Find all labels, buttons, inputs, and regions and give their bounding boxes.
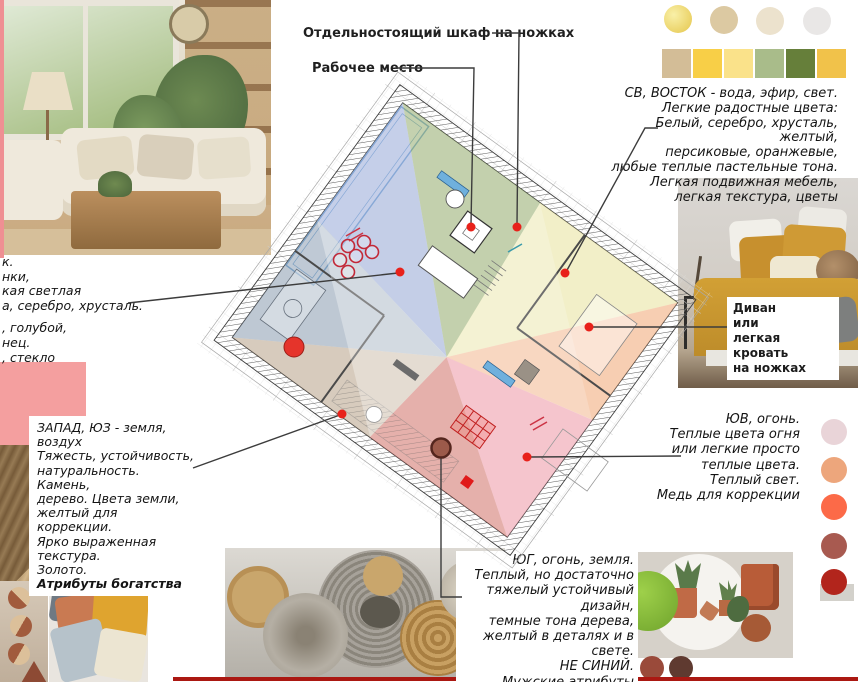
- closet-square: [514, 359, 539, 384]
- callout-dot: [513, 223, 522, 232]
- window-strip: [483, 361, 515, 387]
- text-line-bold: Атрибуты богатства: [37, 577, 195, 591]
- text-line: желтый в деталях и в свете.: [460, 629, 634, 659]
- text-line: а, серебро, хрусталь.: [2, 299, 143, 314]
- callout-dot: [523, 453, 532, 462]
- callout-dot: [585, 323, 594, 332]
- clock: [169, 4, 209, 44]
- left-room-fan: [280, 296, 305, 321]
- decor-triangle: [20, 661, 48, 682]
- text-line: или: [733, 316, 833, 331]
- bed-outline: [559, 294, 637, 375]
- swatch-circle: [821, 457, 847, 483]
- swatch-circle: [821, 533, 847, 559]
- text-line: Теплый свет.: [640, 473, 800, 488]
- text-line: Тяжесть, устойчивость,: [37, 449, 195, 463]
- left-room-fixture: [260, 269, 326, 340]
- swatch-circle: [821, 494, 847, 520]
- coffee-table: [71, 191, 221, 249]
- left-fragments-block: к. нки, кая светлая а, серебро, хрусталь…: [2, 255, 143, 365]
- pink-room-outline: [542, 429, 608, 491]
- text-line: Медь для коррекции: [640, 488, 800, 503]
- swatch-circle: [821, 419, 847, 445]
- workplace-label: Рабочее место: [312, 61, 423, 76]
- woven-disc: [363, 556, 403, 596]
- text-line: Ярко выраженная текстура.: [37, 535, 195, 563]
- decor-disc: [8, 643, 30, 665]
- chair-circles: [334, 236, 379, 279]
- stairs: [474, 261, 506, 296]
- text-line: , голубой,: [2, 321, 143, 336]
- text-line: к.: [2, 255, 143, 270]
- text-line: нец.: [2, 336, 143, 351]
- door-strip: [393, 359, 420, 381]
- leader-cabinet: [492, 33, 519, 224]
- pink-edge-strip: [0, 0, 4, 258]
- text-line: тяжелый устойчивый дизайн,: [460, 583, 634, 613]
- swatch-square: [662, 49, 691, 78]
- west-text-block: ЗАПАД, ЮЗ - земля, воздух Тяжесть, устой…: [29, 416, 203, 596]
- text-line: нки,: [2, 270, 143, 285]
- callout-dot: [561, 269, 570, 278]
- sofa-cushion: [197, 136, 252, 180]
- leader-workplace: [395, 68, 474, 224]
- plan-micro-label: [530, 417, 547, 430]
- mesh-disc-center: [360, 596, 400, 628]
- text-line: дерево. Цвета земли,: [37, 492, 195, 506]
- text-line: легкая текстура, цветы: [598, 191, 838, 206]
- leader-left-fragments: [128, 273, 398, 303]
- light-wedge: [447, 203, 592, 420]
- moodboard-canvas: Отдельностоящий шкаф на ножках Рабочее м…: [0, 0, 858, 682]
- sector-southeast-pink: [382, 329, 593, 537]
- text-line: желтый для коррекции.: [37, 506, 195, 534]
- sofa-cushion: [136, 134, 194, 181]
- red-square-marker: [460, 475, 474, 489]
- table-plant: [98, 171, 132, 197]
- sector-southwest-tan: [232, 248, 446, 446]
- text-line: на ножках: [733, 361, 833, 376]
- text-line: , стекло: [2, 351, 143, 366]
- text-line: Легкая подвижная мебель,: [598, 176, 838, 191]
- sector-northwest-blue: [297, 103, 552, 357]
- fan-disc: [263, 593, 348, 678]
- text-line: СВ, ВОСТОК - вода, эфир, свет.: [598, 87, 838, 102]
- text-line: или легкие просто: [640, 442, 800, 457]
- living-room-photo: [3, 0, 271, 255]
- swatch-square: [693, 49, 722, 78]
- text-line: Теплые цвета огня: [640, 427, 800, 442]
- kitchen-sink: [363, 403, 385, 425]
- callout-dot: [396, 268, 405, 277]
- green-room-table: [418, 246, 477, 298]
- text-line: Легкие радостные цвета:: [598, 102, 838, 117]
- wash-basin: [446, 190, 464, 208]
- balcony: [286, 107, 429, 286]
- callout-dot: [338, 410, 347, 419]
- big-red-marker: [284, 337, 304, 357]
- sector-north-green: [297, 103, 552, 357]
- text-line: Мужские атрибуты: [460, 675, 634, 682]
- sector-south-red: [370, 348, 572, 537]
- window-divider: [83, 0, 88, 128]
- text-line: персиковые, оранжевые,: [598, 146, 838, 161]
- text-line: теплые цвета.: [640, 458, 800, 473]
- swatch-circle: [821, 569, 847, 595]
- east-text-block: СВ, ВОСТОК - вода, эфир, свет. Легкие ра…: [598, 87, 838, 205]
- callout-dot: [467, 223, 476, 232]
- decor-disc: [8, 587, 30, 609]
- kitchen-counter: [332, 380, 459, 482]
- text-line: темные тона дерева,: [460, 614, 634, 629]
- balcony-inner: [293, 114, 422, 279]
- decor-disc: [10, 615, 32, 637]
- text-line: Золото.: [37, 563, 195, 577]
- swatch-circle: [664, 5, 692, 33]
- cream-pillow: [93, 627, 148, 682]
- round-pot: [741, 614, 771, 642]
- text-line: Белый, серебро, хрусталь, желтый,: [598, 117, 838, 147]
- plan-micro-label: [508, 244, 522, 252]
- sofa-label-box: Диван или легкая кровать на ножках: [727, 297, 839, 380]
- swatch-square: [755, 49, 784, 78]
- swatch-circle: [710, 6, 738, 34]
- tile-grid: [451, 405, 496, 448]
- swatch-square: [724, 49, 753, 78]
- light-wedge: [317, 220, 447, 437]
- swatch-square: [817, 49, 846, 78]
- text-line: ЮВ, огонь.: [640, 412, 800, 427]
- text-line: натуральность. Камень,: [37, 464, 195, 492]
- south-text-block: ЮГ, огонь, земля. Теплый, но достаточно …: [456, 551, 638, 682]
- desk: [450, 211, 492, 253]
- swatch-circle: [803, 7, 831, 35]
- swatch-square: [786, 49, 815, 78]
- text-line: ЗАПАД, ЮЗ - земля, воздух: [37, 421, 195, 449]
- text-line: кая светлая: [2, 284, 143, 299]
- southeast-text-block: ЮВ, огонь. Теплые цвета огня или легкие …: [640, 412, 800, 503]
- text-line: Теплый, но достаточно: [460, 568, 634, 583]
- brown-marker: [432, 439, 451, 458]
- text-line: ЮГ, огонь, земля.: [460, 553, 634, 568]
- text-line: любые теплые пастельные тона.: [598, 161, 838, 176]
- plan-micro-label: [346, 228, 363, 241]
- text-line: Диван: [733, 301, 833, 316]
- armchair: [3, 140, 63, 220]
- leader-west: [193, 415, 340, 468]
- text-line: НЕ СИНИЙ.: [460, 659, 634, 674]
- text-line: легкая кровать: [733, 331, 833, 361]
- cabinet-label: Отдельностоящий шкаф на ножках: [303, 26, 574, 41]
- swatch-circle: [756, 7, 784, 35]
- window-strip: [437, 171, 469, 197]
